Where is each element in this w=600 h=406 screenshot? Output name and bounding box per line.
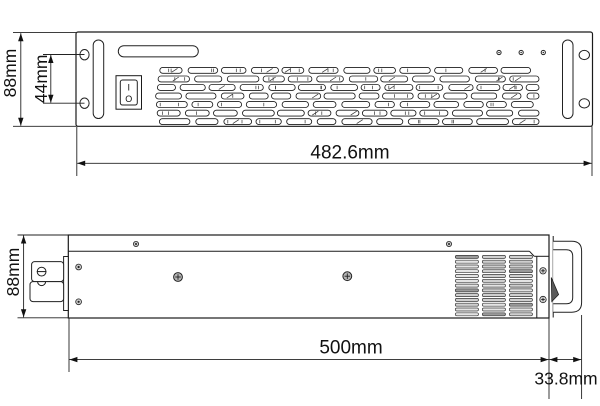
power-off-label: O: [125, 94, 132, 104]
ear-hole-top-right: [579, 50, 589, 59]
dim-side-length: 500mm: [69, 318, 549, 399]
ear-hole-bottom-right: [579, 99, 589, 108]
dim-label-front-width: 482.6mm: [310, 143, 389, 164]
terminal-upper-body: [32, 262, 64, 282]
label-slot: [118, 46, 198, 57]
terminal-flange: [64, 257, 69, 311]
panel-screw-bottom-left: [76, 299, 82, 305]
dim-label-front-height: 88mm: [0, 49, 20, 98]
case-screw-right: [343, 272, 352, 281]
dim-label-side-height: 88mm: [3, 248, 23, 297]
lid-screw-left: [133, 241, 138, 246]
panel-screw-top-right: [540, 268, 546, 274]
terminal-block: [30, 257, 68, 311]
handle: [553, 241, 581, 312]
panel-screw-top-left: [76, 264, 82, 270]
ear-slot-right: [563, 40, 574, 119]
terminal-lower-body: [30, 282, 64, 302]
front-view: I O: [76, 32, 593, 126]
dim-front-width: 482.6mm: [77, 126, 592, 176]
dim-label-side-length: 500mm: [319, 338, 382, 359]
dim-label-hole-spacing: 44mm: [31, 54, 51, 103]
dim-label-handle-depth: 33.8mm: [534, 369, 597, 389]
panel-screw-bottom-right: [540, 296, 546, 302]
ear-slot-left: [93, 40, 104, 119]
dim-handle-depth: 33.8mm: [534, 315, 597, 399]
lid-screw-right: [446, 241, 451, 246]
dimension-drawing: I O 88mm 44mm 482.6mm: [0, 0, 600, 406]
power-on-label: I: [128, 83, 131, 93]
side-view: [30, 235, 582, 318]
case-screw-left: [174, 273, 183, 282]
